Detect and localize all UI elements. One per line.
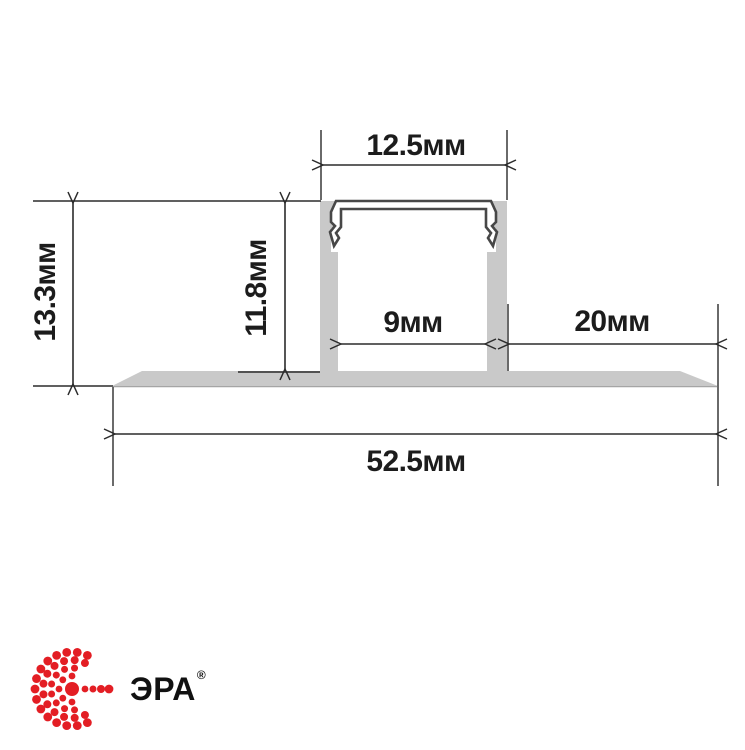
dimension-label-cover-width: 12.5мм [366,131,465,161]
registered-trademark: ® [197,669,206,681]
profile-base-flange [112,371,718,386]
dimension-label-recess-height: 11.8мм [242,239,272,337]
dimension-label-right-flange-width: 20мм [574,307,649,337]
profile-cross-section [112,201,718,387]
profile-drawing [0,0,745,750]
technical-drawing-page: 12.5мм 13.3мм 11.8мм 9мм 20мм 52.5мм ЭРА… [0,0,745,750]
brand-logo-text: ЭРА ® [130,673,206,705]
era-dotted-circle-icon [26,643,118,735]
dimension-label-overall-width: 52.5мм [366,447,465,477]
brand-name: ЭРА [130,673,196,705]
brand-logo: ЭРА ® [26,643,206,735]
dimension-label-channel-inner-width: 9мм [383,308,442,338]
diffuser-cover [330,201,497,246]
dimension-label-overall-height: 13.3мм [31,242,61,341]
